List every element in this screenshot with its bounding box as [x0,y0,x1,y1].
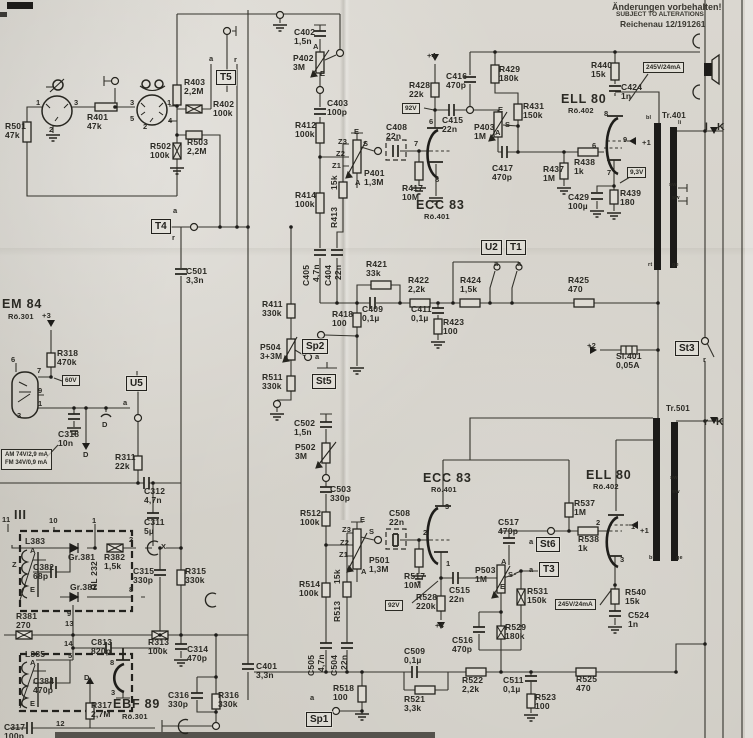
label-c515: C515 22n [449,586,470,605]
label-6: 6 [11,356,15,364]
label-1: 1 [167,99,171,107]
voltage-badge-93v: 9,3V [627,167,646,178]
label-c424: C424 1n [621,83,642,102]
label-r503: R503 2,2M [187,138,208,157]
label-c429: C429 100µ [568,193,589,212]
label-c504: C504 [330,655,339,676]
label-r413: R413 [330,207,339,228]
label-5: 5 [68,652,72,660]
label-r414: R414 100k [295,191,316,210]
level-info-box: AM 74V/2,9 mA FM 34V/0,9 mA [1,449,52,470]
label-1: 1 [631,523,635,531]
transformers [653,63,712,561]
label-47n: 4,7n [312,264,321,282]
label-15k: 15k [333,569,342,584]
label-a: a [517,260,521,268]
label-r: r [172,234,175,242]
label-p504: P504 3+3M [260,343,282,362]
label-r538: R538 1k [578,535,599,554]
label-22n: 22n [340,655,349,670]
label-p501: P501 1,3M [369,556,390,575]
label-p401: P401 1,3M [364,169,385,188]
label-c314: C314 470p [187,645,208,664]
terminal-t5: T5 [216,70,236,85]
label-z2: Z2 [336,150,345,158]
label-ell: ELL 80 [586,469,632,483]
label-c401: C401 3,3n [256,662,277,681]
terminal-u5: U5 [126,376,147,391]
label-z2: Z2 [340,539,349,547]
label-ecc: ECC 83 [423,472,472,486]
label-c315: C315 330p [133,567,154,586]
label-c813: C813 820p [91,638,112,657]
label-r401: Rö.401 [424,213,450,221]
label-e: E [500,583,505,591]
label-r402: Rö.402 [593,483,619,491]
label-2: 2 [423,529,427,537]
label-r423: R423 100 [443,318,464,337]
label-r315: R315 330k [185,567,206,586]
tubes [114,118,618,692]
voltage-badge-92v: 92V [385,600,403,611]
label-c317: C317 100p [4,723,25,738]
label-a: A [501,558,507,566]
label-r313: R313 100k [148,638,169,657]
label-2: 2 [143,123,147,131]
label-8: 8 [435,176,439,184]
label-a: A [30,547,36,555]
label-tr501: Tr.501 [666,405,690,414]
label-9: 9 [38,387,42,395]
label-5: 5 [130,115,134,123]
label-e: E [320,70,325,78]
terminal-t3: T3 [539,562,559,577]
label-e: E [498,106,503,114]
label-r437: R437 1M [543,165,564,184]
label-a: a [209,55,213,63]
label-+2: +2 [587,342,596,350]
label-r529: R529 180k [505,623,526,642]
label-c524: C524 1n [628,611,649,630]
terminal-sp2: Sp2 [302,339,328,354]
label-ge: ge [672,262,679,268]
label-r521: R521 3,3k [404,695,425,714]
label-k: K [716,417,724,429]
label-a: a [529,566,533,574]
label-z: Z [12,561,17,569]
label-p403: P403 1M [474,123,495,142]
label-c415: C415 22n [442,116,463,135]
label-r438: R438 1k [574,158,595,177]
label-z3: Z3 [338,138,347,146]
label-8: 8 [110,659,114,667]
label-r: r [704,417,708,429]
label-r382: R382 1,5k [104,553,125,572]
label-a: a [123,399,127,407]
label-r531: R531 150k [527,587,548,606]
label-e: E [30,700,35,708]
label-+1: +1 [642,139,651,147]
label-c382: C382 68p [33,563,54,582]
label-a: a [310,694,314,702]
voltage-badge-60v: 60V [62,375,80,386]
label-d: D [84,674,90,682]
label-bl: bl [649,555,654,561]
label-9: 9 [67,610,71,618]
label-r439: R439 180 [620,189,641,208]
label-iii: III [14,509,27,523]
terminal-sp1: Sp1 [306,712,332,727]
label-r511: R511 330k [262,373,283,392]
label-10: 10 [49,517,58,525]
label-r514: R514 100k [299,580,320,599]
label-6: 6 [429,118,433,126]
label-r422: R422 2,2k [408,276,429,295]
label-c501: C501 3,3n [186,267,207,286]
label-r537: R537 1M [574,499,595,518]
label-r523: R523 100 [535,693,556,712]
label-r403: R403 2,2M [184,78,205,97]
terminal-t4: T4 [151,219,171,234]
label-z1: Z1 [339,551,348,559]
label-9: 9 [623,136,627,144]
label-l: l [705,122,708,134]
label-e: E [360,516,365,524]
label-p402: P402 3M [293,54,314,73]
label-em: EM 84 [2,298,42,312]
label-3: 3 [111,689,115,697]
label-r301: Rö.301 [122,713,148,721]
label-ell: ELL 80 [561,93,607,107]
label-c384: C384 470p [33,677,54,696]
voltage-badge-245v24ma: 245V/24mA [555,599,596,610]
label-sw: sw [670,475,678,481]
label-r431: R431 150k [523,102,544,121]
label-r: r [703,356,706,364]
label-r402: Rö.402 [568,107,594,115]
label-r316: R316 330k [218,691,239,710]
label-3: 3 [17,412,21,420]
label-r425: R425 470 [568,276,589,295]
label-c408: C408 22n [386,123,407,142]
label-r513: R513 [333,601,342,622]
label-c517: C517 470p [498,518,519,537]
schematic-page: Änderungen vorbehalten! SUBJECT TO ALTER… [0,0,753,738]
label-a: A [355,179,361,187]
label-s: S [369,528,374,536]
label-3: 3 [620,556,624,564]
voltage-badge-92v: 92V [402,103,420,114]
label-r301: Rö.301 [8,313,34,321]
label-l383: L383 [25,537,45,546]
label-ge: ge [676,555,683,561]
label-r528: R528 220k [416,593,437,612]
label-2: 2 [49,126,53,134]
label-r525: R525 470 [576,675,597,694]
note-line-en: SUBJECT TO ALTERATIONS! [616,11,706,18]
label-c409: C409 0,1µ [362,305,383,324]
label-p503: P503 1M [475,566,496,585]
label-4: 4 [168,117,172,125]
label-1: 1 [38,400,42,408]
label-k: K [717,122,725,134]
label-ecc: ECC 83 [416,199,465,213]
terminal-st3: St3 [675,341,699,356]
resistors [16,63,619,719]
label-r429: R429 180k [499,65,520,84]
label-c312: C312 4,7n [144,487,165,506]
label-r402: R402 100k [213,100,234,119]
label-+4: +4 [435,622,444,630]
label-ebf: EBF 89 [113,698,160,712]
label-sw: sw [669,182,677,188]
label-z3: Z3 [342,526,351,534]
label-x: X [161,543,166,551]
label-d: D [83,451,89,459]
label-7: 7 [607,169,611,177]
label-r317: R317 2,7M [91,701,112,720]
label-15k: 15k [330,175,339,190]
label-c404: C404 [324,265,333,286]
label-7: 7 [414,140,418,148]
terminal-st6: St6 [536,537,560,552]
label-c508: C508 22n [389,509,410,528]
label-c516: C516 470p [452,636,473,655]
label-r522: R522 2,2k [462,676,483,695]
label-bl: bl [646,115,651,121]
label-rl: RL 232 [90,561,99,590]
label-e: E [30,586,35,594]
label-c403: C403 100p [327,99,348,118]
label-c505: C505 [307,655,316,676]
label-c509: C509 0,1µ [404,647,425,666]
label-47n: 4,7n [317,654,326,672]
terminal-u2: U2 [481,240,502,255]
label-z1: Z1 [332,162,341,170]
label-r517: R517 10M [404,572,425,591]
note-line-ref: Reichenau 12/191261 [620,19,706,29]
terminal-t1: T1 [506,240,526,255]
label-r401: R401 47k [87,113,108,132]
label-14: 14 [64,640,73,648]
label-r318: R318 470k [57,349,78,368]
label-c511: C511 0,1µ [503,676,524,695]
label-c411: C411 0,1µ [411,305,432,324]
label-1: 1 [92,517,96,525]
terminal-st5: St5 [312,374,336,389]
label-p502: P502 3M [295,443,316,462]
label-1: 1 [36,99,40,107]
label-a: a [315,353,319,361]
label-c416: C416 470p [446,72,467,91]
label-sw: sw [672,489,680,495]
label-r401: Rö.401 [431,486,457,494]
label-s: S [508,571,513,579]
label-r: r [234,56,237,64]
label-r501: R501 47k [5,122,26,141]
label-13: 13 [65,620,74,628]
label-li: li [678,120,681,126]
label-c318: C318 10n [58,430,79,449]
label-r412: R412 100k [295,121,316,140]
label-r424: R424 1,5k [460,276,481,295]
label-r518: R518 100 [333,684,354,703]
label-11: 11 [2,516,10,524]
label-+1: +1 [640,527,649,535]
label-c503: C503 330p [330,485,351,504]
label-2: 2 [129,536,133,544]
label-c402: C402 1,5n [294,28,315,47]
label-2: 2 [596,519,600,527]
label-e: E [354,128,359,136]
label-6: 6 [592,142,596,150]
voltage-badge-245v24ma: 245V/24mA [643,62,684,73]
label-a: A [495,129,501,137]
label-+4: +4 [427,52,436,60]
label-r411: R411 330k [262,300,283,319]
label-3: 3 [130,99,134,107]
label-r428: R428 22k [409,81,430,100]
label-a: a [173,207,177,215]
label-a: A [361,568,367,576]
label-rt: rt [648,262,652,268]
label-r418: R418 100 [332,310,353,329]
label-8: 8 [129,586,133,594]
label-r512: R512 100k [300,509,321,528]
label-r440: R440 15k [591,61,612,80]
label-7: 7 [37,367,41,375]
label-sw: sw [672,195,680,201]
label-s: S [363,140,368,148]
label-8: 8 [604,110,608,118]
label-a: a [494,260,498,268]
label-3: 3 [445,503,449,511]
label-s: S [505,121,510,129]
label-3: 3 [74,99,78,107]
label-a: a [529,538,533,546]
label-c316: C316 330p [168,691,189,710]
label-a: A [313,43,319,51]
label-r502: R502 100k [150,142,171,161]
label-r421: R421 33k [366,260,387,279]
label-r540: R540 15k [625,588,646,607]
label-a: A [30,659,36,667]
label-12: 12 [56,720,65,728]
label-tr401: Tr.401 [662,112,686,121]
label-c405: C405 [302,265,311,286]
label-d: D [102,421,108,429]
label-c311: C311 5µ [144,518,165,537]
label-r311: R311 22k [115,453,136,472]
label-+3: +3 [42,312,51,320]
label-c502: C502 1,5n [294,419,315,438]
label-si401: Si.401 0,05A [616,352,642,371]
label-r381: R381 270 [16,612,37,631]
label-c417: C417 470p [492,164,513,183]
label-1: 1 [446,560,450,568]
label-22n: 22n [334,265,343,280]
